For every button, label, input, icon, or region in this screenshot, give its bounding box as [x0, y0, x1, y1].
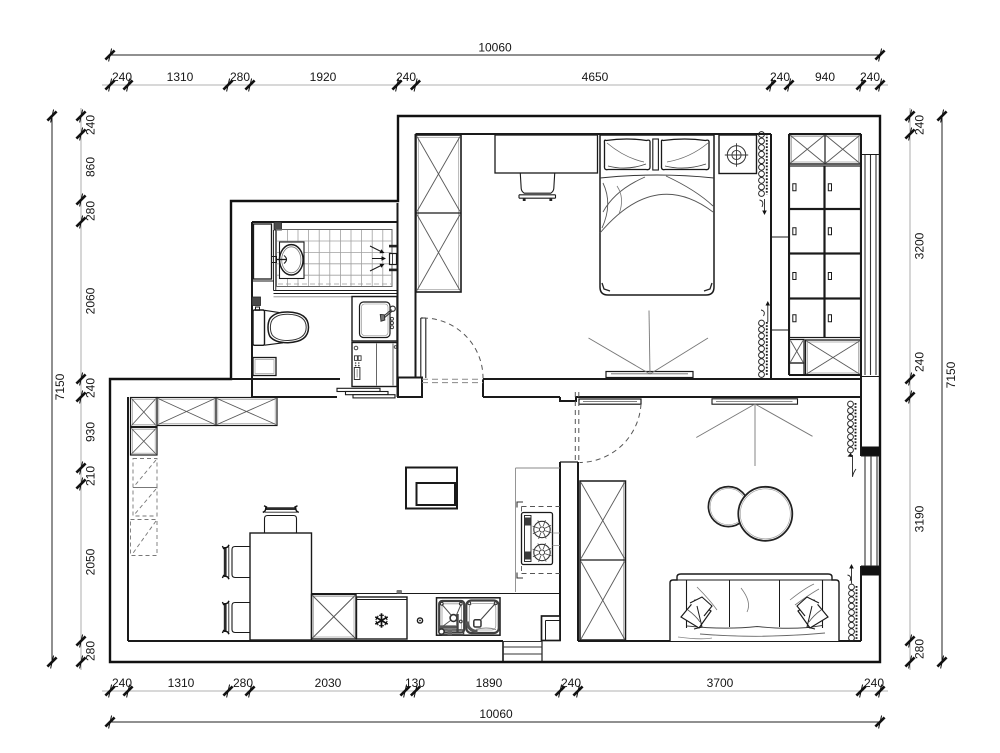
svg-text:1920: 1920 — [310, 70, 337, 84]
svg-text:240: 240 — [112, 676, 132, 690]
svg-text:280: 280 — [84, 201, 98, 221]
svg-text:240: 240 — [112, 70, 132, 84]
svg-text:210: 210 — [84, 466, 98, 486]
svg-text:280: 280 — [84, 641, 98, 661]
svg-text:1890: 1890 — [476, 676, 503, 690]
svg-text:940: 940 — [815, 70, 835, 84]
svg-text:2050: 2050 — [84, 548, 98, 575]
svg-text:240: 240 — [561, 676, 581, 690]
svg-text:280: 280 — [913, 639, 927, 659]
svg-text:930: 930 — [84, 422, 98, 442]
svg-text:280: 280 — [230, 70, 250, 84]
svg-text:240: 240 — [396, 70, 416, 84]
svg-text:3200: 3200 — [913, 232, 927, 259]
svg-text:280: 280 — [233, 676, 253, 690]
svg-text:1310: 1310 — [167, 70, 194, 84]
svg-text:2060: 2060 — [84, 287, 98, 314]
svg-text:10060: 10060 — [478, 41, 512, 55]
svg-text:240: 240 — [860, 70, 880, 84]
svg-text:240: 240 — [84, 378, 98, 398]
svg-text:10060: 10060 — [479, 707, 513, 721]
svg-text:860: 860 — [84, 157, 98, 177]
svg-text:240: 240 — [913, 115, 927, 135]
svg-text:7150: 7150 — [944, 361, 958, 388]
svg-text:1310: 1310 — [168, 676, 195, 690]
svg-text:3190: 3190 — [913, 505, 927, 532]
svg-text:4650: 4650 — [582, 70, 609, 84]
svg-text:240: 240 — [864, 676, 884, 690]
svg-text:3700: 3700 — [707, 676, 734, 690]
svg-text:7150: 7150 — [53, 373, 67, 400]
svg-text:240: 240 — [770, 70, 790, 84]
svg-text:130: 130 — [405, 676, 425, 690]
svg-text:240: 240 — [913, 352, 927, 372]
svg-text:240: 240 — [84, 115, 98, 135]
svg-text:2030: 2030 — [315, 676, 342, 690]
